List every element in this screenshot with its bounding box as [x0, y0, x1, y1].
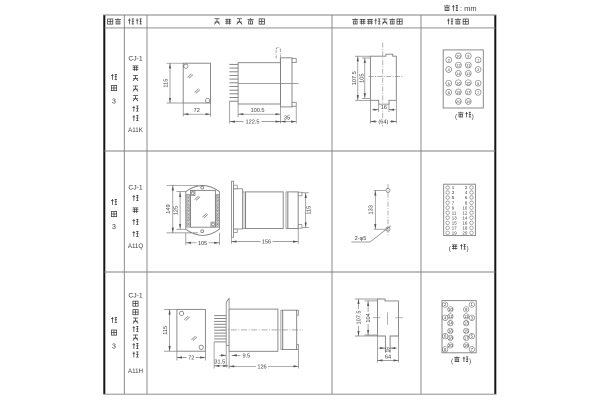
svg-text:20: 20: [462, 230, 467, 235]
svg-text:CJ-1: CJ-1: [128, 293, 143, 300]
svg-text:125: 125: [174, 206, 180, 215]
svg-text:12: 12: [448, 314, 453, 319]
svg-text:19: 19: [466, 99, 471, 104]
svg-text:19: 19: [452, 230, 457, 235]
svg-text:A11H: A11H: [128, 368, 143, 375]
svg-text:107.5: 107.5: [352, 71, 358, 85]
svg-text:72: 72: [194, 108, 200, 114]
svg-text:100.5: 100.5: [251, 108, 265, 114]
svg-text:16: 16: [381, 105, 387, 111]
svg-text:31.5: 31.5: [214, 359, 225, 365]
svg-text:20: 20: [448, 343, 453, 348]
svg-text:20: 20: [456, 99, 461, 104]
svg-text:A11K: A11K: [128, 127, 144, 134]
svg-text:CJ-1: CJ-1: [128, 185, 143, 192]
svg-text:105: 105: [359, 74, 365, 83]
svg-text:18: 18: [448, 335, 453, 340]
svg-text:10: 10: [448, 307, 453, 312]
svg-text:CJ-1: CJ-1: [128, 56, 143, 63]
svg-text:): ): [467, 245, 469, 252]
svg-text:3: 3: [112, 224, 116, 231]
svg-text:16: 16: [448, 328, 453, 333]
svg-text:(64): (64): [378, 120, 388, 126]
svg-text:): ): [469, 358, 471, 365]
svg-text:A11Q: A11Q: [128, 243, 144, 250]
svg-text:19: 19: [464, 343, 469, 348]
svg-text:12: 12: [456, 63, 461, 68]
svg-text:14: 14: [456, 71, 461, 76]
svg-text:2-φ5: 2-φ5: [355, 236, 367, 242]
svg-text:122.5: 122.5: [246, 120, 260, 126]
svg-text:115: 115: [163, 326, 169, 335]
svg-text:: mm: : mm: [460, 4, 477, 13]
svg-text:15: 15: [466, 80, 471, 85]
svg-text:156: 156: [262, 240, 271, 246]
svg-text:15: 15: [464, 328, 469, 333]
svg-text:64: 64: [385, 354, 391, 360]
svg-text:10: 10: [456, 54, 461, 59]
svg-text:3: 3: [112, 99, 116, 106]
svg-text:17: 17: [464, 335, 469, 340]
svg-text:13: 13: [464, 321, 469, 326]
svg-text:3: 3: [112, 344, 116, 351]
svg-text:16: 16: [386, 347, 392, 353]
svg-text:14: 14: [448, 321, 453, 326]
svg-text:105: 105: [198, 241, 207, 247]
svg-text:): ): [472, 113, 474, 120]
svg-text:72: 72: [188, 356, 194, 362]
svg-text:115: 115: [163, 79, 169, 88]
svg-text:9.5: 9.5: [243, 354, 251, 360]
svg-text:104: 104: [366, 313, 372, 322]
svg-text:18: 18: [456, 90, 461, 95]
svg-text:35: 35: [284, 115, 290, 121]
svg-text:133: 133: [369, 205, 375, 214]
svg-text:13: 13: [466, 71, 471, 76]
svg-text:126: 126: [257, 364, 266, 370]
svg-text:16: 16: [456, 80, 461, 85]
svg-text:11: 11: [464, 314, 469, 319]
svg-text:115: 115: [306, 206, 312, 215]
svg-text:107.5: 107.5: [356, 311, 362, 325]
svg-text:149: 149: [166, 204, 172, 213]
svg-text:17: 17: [466, 90, 471, 95]
